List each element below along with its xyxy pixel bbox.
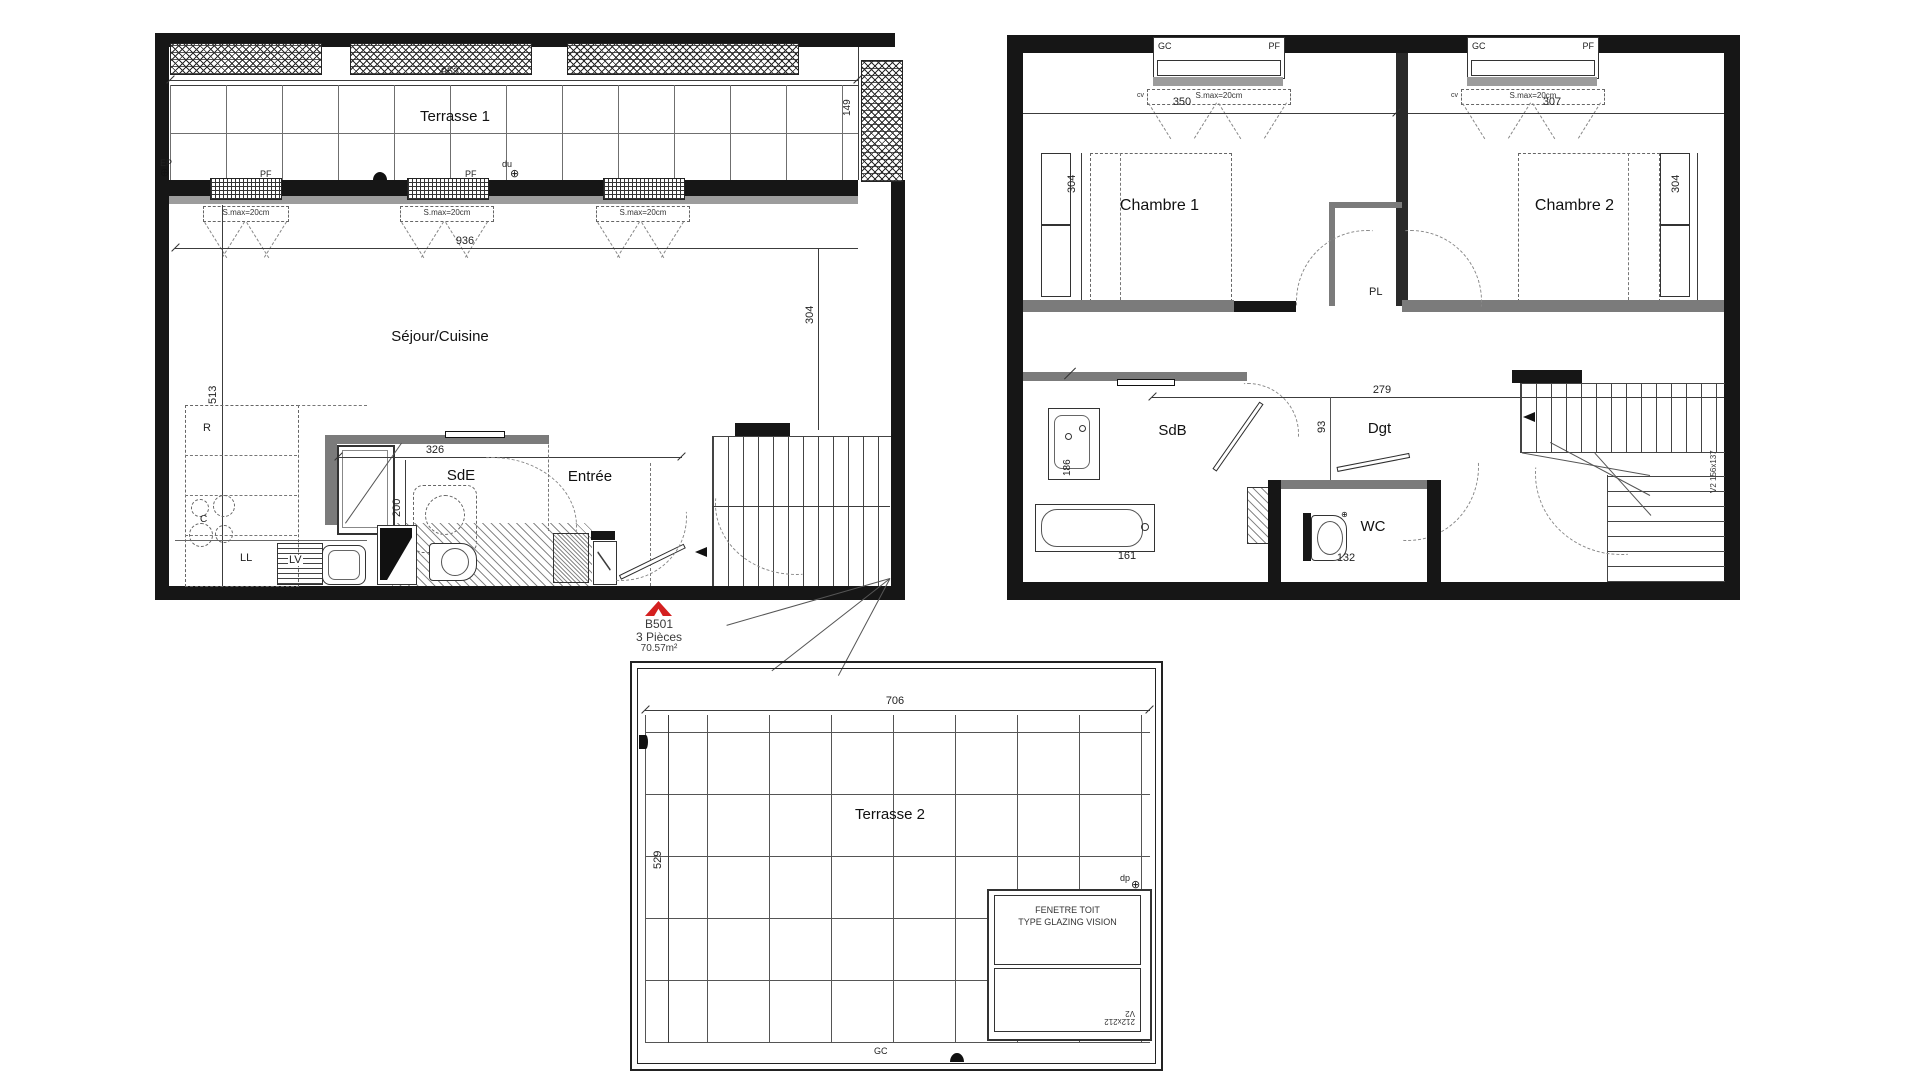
plant-pot xyxy=(861,60,903,182)
wall xyxy=(1007,582,1740,600)
window-swing-line xyxy=(617,221,640,257)
wardrobe xyxy=(1041,225,1071,297)
kitchen-counter-edge xyxy=(297,405,367,406)
zigzag-line xyxy=(597,551,610,570)
room-label-terrasse2: Terrasse 2 xyxy=(835,807,945,824)
skylight-title: FENETRE TOIT xyxy=(995,906,1140,915)
wall xyxy=(337,435,549,444)
room-label-sde: SdE xyxy=(441,468,481,485)
wall xyxy=(1724,35,1740,600)
dim-200: 200 xyxy=(392,493,404,523)
door-leaf-hatched xyxy=(553,533,589,583)
dim-304: 304 xyxy=(805,298,817,332)
dim-529: 529 xyxy=(653,843,665,877)
spot-icon xyxy=(639,735,648,749)
unit-area: 70.57m² xyxy=(634,644,684,654)
skylight-box: FENETRE TOIT TYPE GLAZING VISION 212x212… xyxy=(987,889,1152,1041)
toilet-bowl xyxy=(1317,521,1343,555)
wall xyxy=(591,531,615,540)
window-swing-line xyxy=(1264,102,1287,138)
cooktop-burner xyxy=(189,523,213,547)
faucet-dot xyxy=(1141,523,1149,531)
room-label-wc: WC xyxy=(1353,519,1393,536)
wall xyxy=(155,33,169,600)
wall xyxy=(1007,35,1023,600)
label-cooktop: C xyxy=(200,515,207,525)
faucet-dot xyxy=(1079,425,1086,432)
label-pf: PF xyxy=(1268,42,1280,51)
label-gc: GC xyxy=(1158,42,1172,51)
label-gc: GC xyxy=(1472,42,1486,51)
door-leaf-fill xyxy=(380,528,412,580)
wall xyxy=(325,435,337,525)
dim-line xyxy=(1408,113,1724,114)
window-swing-line xyxy=(1148,103,1171,139)
bed xyxy=(1090,153,1232,302)
dim-line xyxy=(1697,153,1698,300)
window-sill xyxy=(1153,77,1283,86)
dim-line xyxy=(1023,113,1396,114)
stair-treads xyxy=(712,436,891,507)
skylight-size: 212x212 xyxy=(1075,1017,1135,1025)
window xyxy=(210,178,282,200)
closet-door xyxy=(593,541,617,585)
towel-rail xyxy=(445,431,505,438)
window-swing-line xyxy=(641,222,664,258)
window-swing-line xyxy=(264,221,287,257)
wall xyxy=(1427,480,1441,583)
label-cv: cv xyxy=(1137,92,1144,99)
drain-icon: ⊕ xyxy=(510,169,519,180)
bed-head-line xyxy=(1120,153,1121,300)
room-label-sejour: Séjour/Cuisine xyxy=(380,329,500,346)
stair-direction-arrow xyxy=(695,547,707,557)
unit-marker-icon xyxy=(645,601,672,616)
dim-279: 279 xyxy=(1362,385,1402,396)
room-label-dgt: Dgt xyxy=(1357,421,1402,438)
dim-132: 132 xyxy=(1329,553,1363,564)
toilet-tank xyxy=(1303,513,1311,561)
kitchen-divider xyxy=(185,495,297,496)
label-cv: cv xyxy=(1451,92,1458,99)
window-swing-line xyxy=(401,222,424,258)
dim-line xyxy=(668,715,669,1043)
bed-head-line xyxy=(1628,153,1629,300)
room-label-terrasse1: Terrasse 1 xyxy=(405,109,505,126)
window-swing-line xyxy=(597,222,620,258)
skylight-code: V2 xyxy=(1075,1009,1135,1017)
wall-black-segment xyxy=(1234,301,1296,312)
stair-direction-arrow xyxy=(1523,412,1535,422)
planter xyxy=(567,43,799,75)
stair-window-tag: V2 156x137 xyxy=(1710,423,1722,493)
planter xyxy=(170,43,322,75)
floor-plan-upper: GC PF S.max=20cm cv GC PF S.max=20cm cv … xyxy=(1007,35,1740,600)
label-dishwasher: LV xyxy=(288,555,303,566)
dim-line xyxy=(170,80,858,81)
window-swing-line xyxy=(1218,103,1241,139)
label-gc: GC xyxy=(874,1047,888,1056)
label-pf: PF xyxy=(1582,42,1594,51)
towel-rail xyxy=(1117,379,1175,386)
dim-706: 706 xyxy=(875,696,915,707)
window-swing-line xyxy=(661,221,684,257)
window-pane xyxy=(1157,60,1281,76)
skylight-upper: FENETRE TOIT TYPE GLAZING VISION xyxy=(994,895,1141,965)
dim-326: 326 xyxy=(417,445,453,456)
room-label-entree: Entrée xyxy=(560,469,620,486)
dim-161: 161 xyxy=(1112,551,1142,562)
door-leaf xyxy=(1337,453,1411,472)
window-sill xyxy=(1467,77,1597,86)
drain-icon: ⊕ xyxy=(160,168,169,179)
dim-line xyxy=(1081,153,1082,300)
wall xyxy=(1268,480,1281,583)
floor-plan-ground: 149 953 Terrasse 1 EP ⊕ PF PF du ⊕ S.max… xyxy=(155,33,905,600)
wall xyxy=(155,586,905,600)
label-washer: LL xyxy=(240,553,252,564)
door-panel xyxy=(377,525,417,585)
dim-936: 936 xyxy=(440,236,490,247)
roof-window: GC PF xyxy=(1467,37,1599,79)
vent-icon: ⊕ xyxy=(1341,511,1348,519)
floor-plan-roof: 706 529 Terrasse 2 GC dp ⊕ FENETRE TOIT … xyxy=(630,661,1163,1071)
window xyxy=(407,178,489,200)
dim-line xyxy=(175,248,858,249)
smax-note: S.max=20cm xyxy=(596,206,690,222)
window-pane xyxy=(1471,60,1595,76)
dim-307: 307 xyxy=(1535,97,1569,108)
kitchen-sink-basin xyxy=(328,550,360,580)
dim-93: 93 xyxy=(1317,415,1329,439)
label-fridge: R xyxy=(203,423,211,434)
room-label-sdb: SdB xyxy=(1150,423,1195,440)
terrace-joint-line xyxy=(170,133,858,134)
roof-window: GC PF xyxy=(1153,37,1285,79)
window-swing-line xyxy=(1508,102,1531,138)
bed xyxy=(1518,153,1660,302)
partition-line xyxy=(1330,397,1331,480)
cooktop-burner xyxy=(213,495,235,517)
room-boundary-dashed xyxy=(548,435,549,531)
door-leaf-hatched xyxy=(1247,487,1270,544)
label-dp: dp xyxy=(1120,874,1130,883)
wall xyxy=(891,180,905,600)
window xyxy=(603,178,685,200)
smax-note: S.max=20cm xyxy=(203,206,289,222)
skylight-subtitle: TYPE GLAZING VISION xyxy=(995,918,1140,927)
kitchen-divider xyxy=(185,455,297,456)
dim-350: 350 xyxy=(1165,97,1199,108)
bathtub-inner xyxy=(1041,509,1143,547)
terrace-edge-line xyxy=(858,47,859,180)
window-swing-line xyxy=(1532,103,1555,139)
dim-304: 304 xyxy=(1671,167,1683,201)
stair-landing-bar xyxy=(735,423,790,436)
wall xyxy=(1480,300,1724,312)
door-swing-arc xyxy=(1197,383,1299,485)
dim-186: 186 xyxy=(1063,453,1075,483)
window-swing-line xyxy=(1578,102,1601,138)
dim-line xyxy=(645,710,1150,711)
closet-wall xyxy=(1329,202,1402,208)
faucet-dot xyxy=(1065,433,1072,440)
window-swing-line xyxy=(222,221,245,257)
dim-953: 953 xyxy=(420,67,480,78)
toilet-bowl xyxy=(441,548,469,576)
unit-type: 3 Pièces xyxy=(631,631,687,643)
wall xyxy=(1007,35,1740,53)
counter-edge xyxy=(175,540,367,541)
dim-304: 304 xyxy=(1067,167,1079,201)
smax-note: S.max=20cm xyxy=(400,206,494,222)
skylight-tag: 212x212 V2 xyxy=(1075,1001,1135,1025)
wardrobe xyxy=(1660,225,1690,297)
dim-line xyxy=(818,248,819,430)
skylight-lower: 212x212 V2 xyxy=(994,968,1141,1032)
stair-landing-bar xyxy=(1512,370,1582,383)
unit-code: B501 xyxy=(638,618,680,630)
wall xyxy=(1023,300,1234,312)
window-swing-line xyxy=(1462,103,1485,139)
